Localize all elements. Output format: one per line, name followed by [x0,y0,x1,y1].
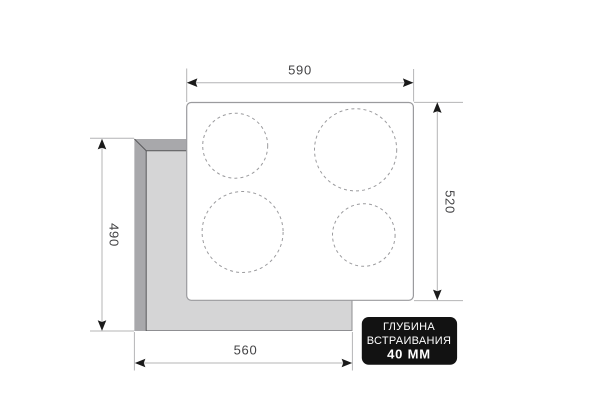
svg-text:ВСТРАИВАНИЯ: ВСТРАИВАНИЯ [367,335,452,347]
svg-text:560: 560 [234,342,258,357]
svg-text:40 ММ: 40 ММ [387,347,431,362]
svg-text:520: 520 [442,190,457,214]
svg-text:ГЛУБИНА: ГЛУБИНА [383,321,435,333]
svg-text:490: 490 [107,223,122,247]
svg-text:590: 590 [288,63,312,78]
